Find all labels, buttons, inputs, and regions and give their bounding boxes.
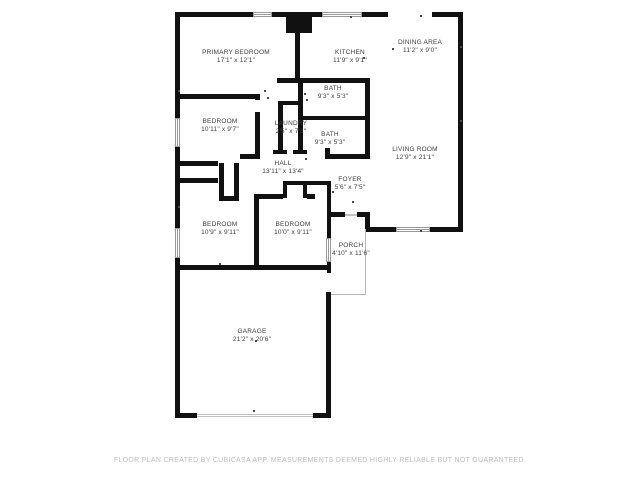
wall-segment	[175, 12, 253, 17]
wall-segment	[277, 78, 370, 83]
wall-segment	[280, 101, 303, 105]
wall-segment	[303, 181, 307, 198]
dimension-tick	[350, 16, 352, 18]
window-symbol	[326, 238, 331, 262]
room-label-primary-bedroom: PRIMARY BEDROOM17'1" x 12'1"	[202, 49, 270, 65]
wall-segment	[180, 94, 260, 99]
wall-segment	[327, 262, 331, 273]
wall-segment	[331, 212, 345, 217]
room-label-hall: HALL13'11" x 13'4"	[262, 160, 304, 176]
room-label-living-room: LIVING ROOM12'9" x 21'1"	[392, 146, 438, 162]
dimension-tick	[352, 201, 354, 203]
dimension-tick	[305, 158, 307, 160]
wall-segment	[430, 227, 463, 232]
wall-segment	[295, 33, 300, 78]
wall-segment	[312, 12, 322, 17]
room-name: BEDROOM	[201, 221, 239, 229]
window-symbol	[396, 227, 430, 232]
room-label-kitchen: KITCHEN11'9" x 9'1"	[333, 49, 367, 65]
room-label-bedroom-right: BEDROOM10'0" x 9'11"	[274, 221, 312, 237]
wall-segment	[255, 112, 260, 159]
room-name: PRIMARY BEDROOM	[202, 49, 270, 57]
wall-segment	[175, 413, 197, 418]
room-label-laundry: LAUNDRY2'5" x 7'1"	[275, 120, 307, 136]
room-name: FOYER	[335, 176, 366, 184]
dimension-tick	[178, 206, 180, 208]
room-dimensions: 11'9" x 9'1"	[333, 57, 367, 65]
wall-segment	[175, 258, 180, 418]
room-name: BATH	[318, 85, 349, 93]
wall-segment	[175, 147, 180, 228]
wall-segment	[458, 12, 463, 232]
room-dimensions: 13'11" x 13'4"	[262, 168, 304, 176]
room-name: DINING AREA	[398, 39, 442, 47]
dimension-tick	[178, 90, 180, 92]
window-symbol	[322, 12, 362, 17]
room-dimensions: 2'5" x 7'1"	[275, 128, 307, 136]
room-label-garage: GARAGE21'2" x 20'6"	[233, 328, 271, 344]
room-name: LIVING ROOM	[392, 146, 438, 154]
window-symbol	[175, 228, 180, 258]
wall-segment	[283, 181, 287, 198]
wall-segment	[313, 413, 331, 418]
dimension-tick	[219, 263, 221, 265]
wall-segment	[283, 181, 331, 185]
wall-segment	[365, 83, 370, 154]
room-name: KITCHEN	[333, 49, 367, 57]
wall-segment	[234, 163, 239, 197]
room-dimensions: 21'2" x 20'6"	[233, 336, 271, 344]
room-label-porch: PORCH4'10" x 11'6"	[332, 242, 370, 258]
wall-segment	[254, 194, 259, 265]
porch-edge-line	[331, 294, 366, 295]
room-name: BEDROOM	[201, 118, 239, 126]
dimension-tick	[460, 120, 462, 122]
wall-segment	[326, 292, 331, 418]
wall-segment	[259, 194, 283, 199]
window-symbol	[253, 12, 272, 17]
room-name: BATH	[315, 131, 346, 139]
wall-segment	[286, 12, 312, 33]
wall-segment	[180, 265, 331, 270]
room-dimensions: 10'11" x 9'7"	[201, 126, 239, 134]
door-opening-line	[197, 414, 313, 415]
room-label-foyer: FOYER5'6" x 7'5"	[335, 176, 366, 192]
wall-segment	[298, 83, 303, 154]
wall-segment	[307, 194, 315, 199]
room-name: LAUNDRY	[275, 120, 307, 128]
room-dimensions: 17'1" x 12'1"	[202, 57, 270, 65]
room-label-bedroom-left: BEDROOM10'9" x 9'11"	[201, 221, 239, 237]
room-name: BEDROOM	[274, 221, 312, 229]
room-name: HALL	[262, 160, 304, 168]
dimension-tick	[332, 191, 334, 193]
wall-segment	[175, 12, 180, 118]
wall-segment	[327, 185, 331, 238]
dimension-tick	[420, 15, 422, 17]
room-label-bedroom-upper: BEDROOM10'11" x 9'7"	[201, 118, 239, 134]
room-dimensions: 10'9" x 9'11"	[201, 229, 239, 237]
dimension-tick	[264, 90, 266, 92]
room-dimensions: 5'6" x 7'5"	[335, 184, 366, 192]
dimension-tick	[253, 410, 255, 412]
floor-plan-canvas: PRIMARY BEDROOM17'1" x 12'1"KITCHEN11'9"…	[0, 0, 640, 480]
door-opening-line	[197, 416, 313, 417]
footer-disclaimer: FLOOR PLAN CREATED BY CUBICASA APP. MEAS…	[0, 457, 640, 464]
room-dimensions: 10'0" x 9'11"	[274, 229, 312, 237]
room-name: PORCH	[332, 242, 370, 250]
room-label-dining-area: DINING AREA11'2" x 9'0"	[398, 39, 442, 55]
dimension-tick	[420, 230, 422, 232]
room-label-bath-lower: BATH9'3" x 5'3"	[315, 131, 346, 147]
wall-segment	[180, 178, 218, 183]
wall-segment	[272, 12, 286, 17]
wall-segment	[273, 150, 287, 154]
wall-segment	[357, 212, 366, 217]
wall-segment	[303, 116, 365, 120]
door-opening-line	[345, 214, 357, 216]
room-dimensions: 9'3" x 5'3"	[315, 139, 346, 147]
wall-segment	[219, 163, 224, 197]
wall-segment	[362, 12, 388, 17]
dimension-tick	[460, 46, 462, 48]
wall-segment	[293, 150, 307, 154]
porch-edge-line	[365, 229, 366, 295]
dimension-tick	[306, 99, 308, 101]
room-name: GARAGE	[233, 328, 271, 336]
room-dimensions: 11'2" x 9'0"	[398, 47, 442, 55]
dimension-tick	[304, 93, 306, 95]
wall-segment	[219, 196, 239, 201]
room-dimensions: 9'3" x 5'3"	[318, 93, 349, 101]
dimension-tick	[392, 48, 394, 50]
wall-segment	[366, 227, 396, 232]
wall-segment	[325, 154, 370, 159]
room-dimensions: 4'10" x 11'6"	[332, 250, 370, 258]
dimension-tick	[267, 97, 269, 99]
window-symbol	[175, 118, 180, 147]
wall-segment	[180, 161, 218, 166]
room-label-bath-upper: BATH9'3" x 5'3"	[318, 85, 349, 101]
room-dimensions: 12'9" x 21'1"	[392, 154, 438, 162]
